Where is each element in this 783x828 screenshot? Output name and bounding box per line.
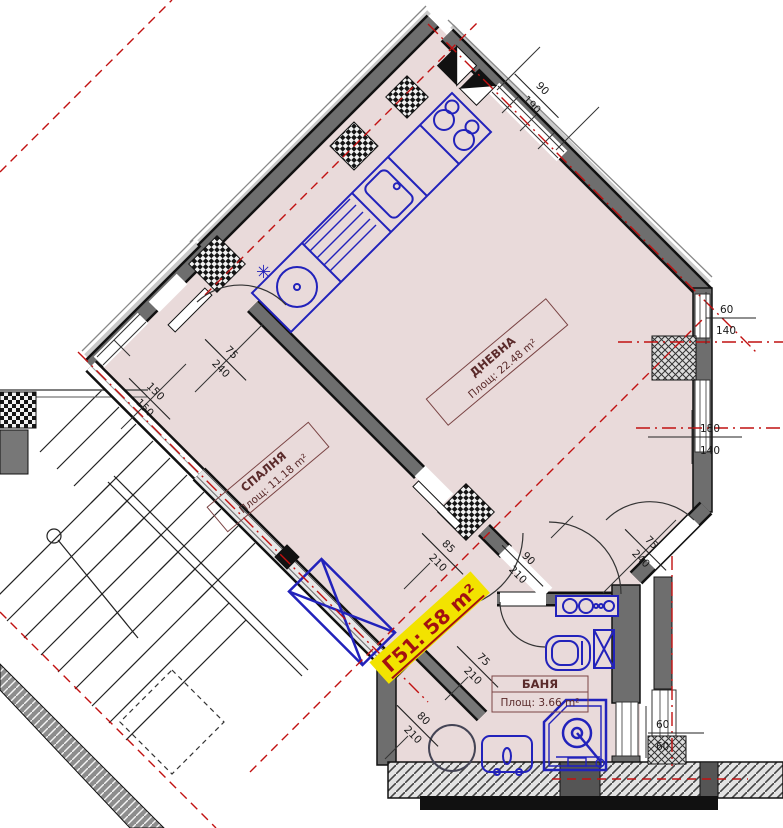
svg-text:140: 140	[700, 445, 720, 457]
stair-opening-dashed	[120, 670, 224, 774]
svg-text:БАНЯ: БАНЯ	[522, 677, 558, 691]
svg-text:Площ: 3.66 m²: Площ: 3.66 m²	[501, 697, 580, 709]
shaft-column	[0, 392, 36, 428]
svg-text:60: 60	[656, 741, 669, 753]
svg-text:60: 60	[720, 304, 733, 316]
floor-plan: ✳	[0, 0, 783, 828]
svg-text:60: 60	[656, 719, 669, 731]
left-wall-block	[0, 430, 28, 474]
floor-plan-drawing: ✳	[0, 0, 783, 828]
svg-text:140: 140	[716, 325, 736, 337]
stair-outer-wall	[0, 664, 164, 828]
bath-cabinet	[556, 596, 618, 616]
asterisk-symbol: ✳	[256, 262, 271, 283]
svg-text:180: 180	[700, 423, 720, 435]
